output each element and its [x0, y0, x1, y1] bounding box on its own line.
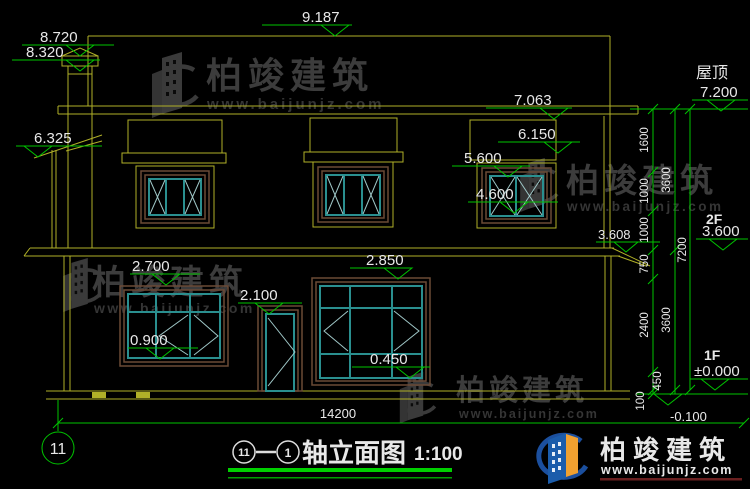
watermark-name: 柏竣建筑: [456, 373, 588, 407]
level-door-top: 2.100: [240, 287, 278, 304]
chain-seg: 7200: [677, 237, 689, 263]
logo-tower-blue-icon: [548, 433, 566, 484]
watermark-top: 柏竣建筑 www.baijunjz.com: [152, 52, 384, 118]
watermark-logo-icon: [152, 52, 197, 118]
axis-bubble: 11: [42, 432, 74, 464]
level-win2f-top: 5.600: [464, 150, 502, 167]
chain-seg: 450: [652, 371, 664, 390]
level-floor2: 3.600: [702, 223, 740, 240]
watermark-site: www.baijunjz.com: [206, 96, 384, 113]
level-win1f-left-top: 2.700: [132, 258, 170, 275]
title-scale: 1:100: [414, 444, 463, 465]
window-1f-main: [312, 278, 430, 385]
canopy: [310, 118, 397, 152]
axis-bubble-label: 11: [50, 441, 67, 458]
entry-door: [258, 306, 302, 391]
drawing-canvas: 柏竣建筑 www.baijunjz.com 柏竣建筑 www.baijunjz.…: [0, 0, 750, 489]
title-underline-thin: [228, 477, 452, 479]
brand-name: 柏竣建筑: [600, 435, 732, 465]
level-win1f-main-top: 2.850: [366, 252, 404, 269]
level-roof: 7.200: [700, 84, 738, 101]
level-ridge: 9.187: [302, 9, 340, 26]
watermark-name: 柏竣建筑: [206, 55, 374, 96]
canopy-band: [304, 152, 403, 162]
drawing-title: 11 1 轴立面图 1:100: [228, 438, 463, 479]
chain-seg: 750: [639, 254, 651, 273]
title-underline: [228, 468, 452, 472]
window-2f-middle: [304, 118, 403, 227]
title-text: 轴立面图: [302, 438, 406, 468]
watermark-site: www.baijunjz.com: [93, 300, 255, 316]
chain-seg: 100: [635, 391, 647, 410]
level-win1f-left-bottom: 0.900: [130, 332, 168, 349]
level-win1f-main-bottom: 0.450: [370, 351, 408, 368]
level-left-eave: 6.325: [34, 130, 72, 147]
roof-label: 屋顶: [696, 64, 728, 82]
title-axis-start: 11: [238, 447, 250, 459]
chimney: [62, 48, 98, 248]
level-dormer-top: 7.063: [514, 92, 552, 109]
canopy-band: [122, 153, 226, 163]
window-2f-left: [122, 120, 226, 228]
watermark-site: www.baijunjz.com: [458, 407, 599, 421]
floor1-label: 1F: [704, 347, 721, 363]
brand-site: www.baijunjz.com: [600, 463, 733, 477]
title-axis-end: 1: [285, 446, 292, 460]
brand-underline: [600, 478, 742, 481]
logo-tower-orange-icon: [566, 434, 578, 477]
level-eave-right: 3.608: [598, 227, 631, 242]
level-ground: -0.100: [670, 409, 707, 424]
dim-total-width: 14200: [320, 406, 356, 421]
brand-logo: 柏竣建筑 www.baijunjz.com: [539, 433, 742, 484]
level-win2f-bottom: 4.600: [476, 186, 514, 203]
cad-elevation-drawing: 柏竣建筑 www.baijunjz.com 柏竣建筑 www.baijunjz.…: [0, 0, 750, 489]
level-chimney-cap: 8.320: [26, 44, 64, 61]
chain-seg: 3600: [661, 307, 673, 333]
level-dormer-mid: 6.150: [518, 126, 556, 143]
tile-canopy: [128, 120, 222, 153]
chain-seg: 1000: [639, 178, 651, 204]
foundation-block: [136, 392, 150, 398]
foundation-block: [92, 392, 106, 398]
chain-seg: 2400: [639, 312, 651, 338]
chain-seg: 3600: [661, 167, 673, 193]
level-floor1: ±0.000: [694, 363, 740, 380]
chain-seg: 1600: [639, 127, 651, 153]
chain-seg: 1000: [639, 217, 651, 243]
